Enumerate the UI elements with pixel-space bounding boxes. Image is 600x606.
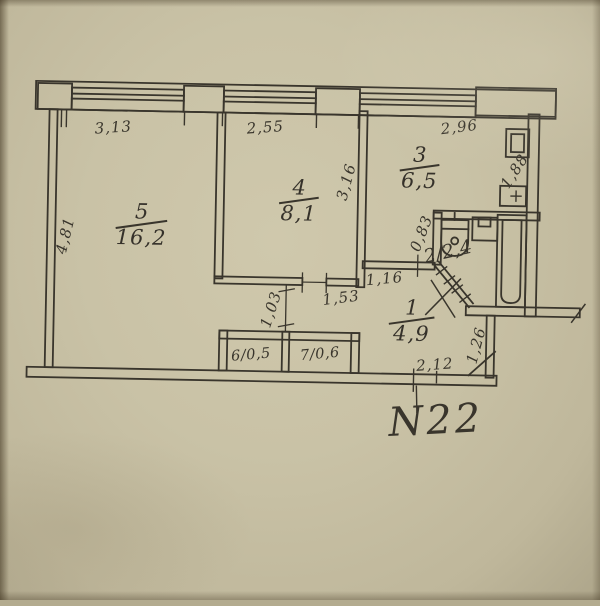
dim-3-13: 3,13 (94, 117, 133, 138)
closet-label-6: 6/0,5 (230, 345, 271, 364)
room-area: 6,5 (401, 169, 438, 192)
floor-plan: 5 16,2 4 8,1 3 6,5 1 4,9 2/2,4 6/0,5 7/0… (0, 0, 600, 606)
dim-2-55: 2,55 (246, 117, 285, 138)
room-number: 4 (292, 177, 306, 197)
window-symbol (360, 93, 476, 117)
toilet-fixture (472, 217, 497, 240)
room-label-1: 1 4,9 (388, 297, 435, 345)
window-symbol (72, 88, 184, 112)
room-label-5: 5 16,2 (115, 201, 168, 249)
wall-pier (38, 83, 72, 110)
room-number: 5 (135, 201, 149, 221)
room-area: 8,1 (280, 202, 317, 225)
wall-pier (476, 87, 557, 117)
room-label-4: 4 8,1 (278, 177, 319, 225)
room-area: 16,2 (116, 226, 167, 249)
closet-label-7: 7/0,6 (300, 345, 341, 364)
wall-room5-room4 (213, 112, 232, 370)
dim-1-16: 1,16 (365, 268, 404, 289)
bathtub-fixture (496, 215, 527, 308)
floor-plan-linework (0, 0, 600, 606)
room-label-3: 3 6,5 (399, 144, 440, 192)
room-number: 1 (405, 298, 419, 318)
window-symbol (224, 91, 316, 115)
wall-pier (316, 88, 360, 115)
dim-2-12: 2,12 (416, 354, 455, 375)
wall-pier (184, 86, 224, 113)
room-number: 3 (413, 145, 427, 165)
wall-hall-right (486, 316, 495, 378)
apartment-number: N22 (387, 395, 484, 446)
room-area: 4,9 (393, 322, 430, 345)
